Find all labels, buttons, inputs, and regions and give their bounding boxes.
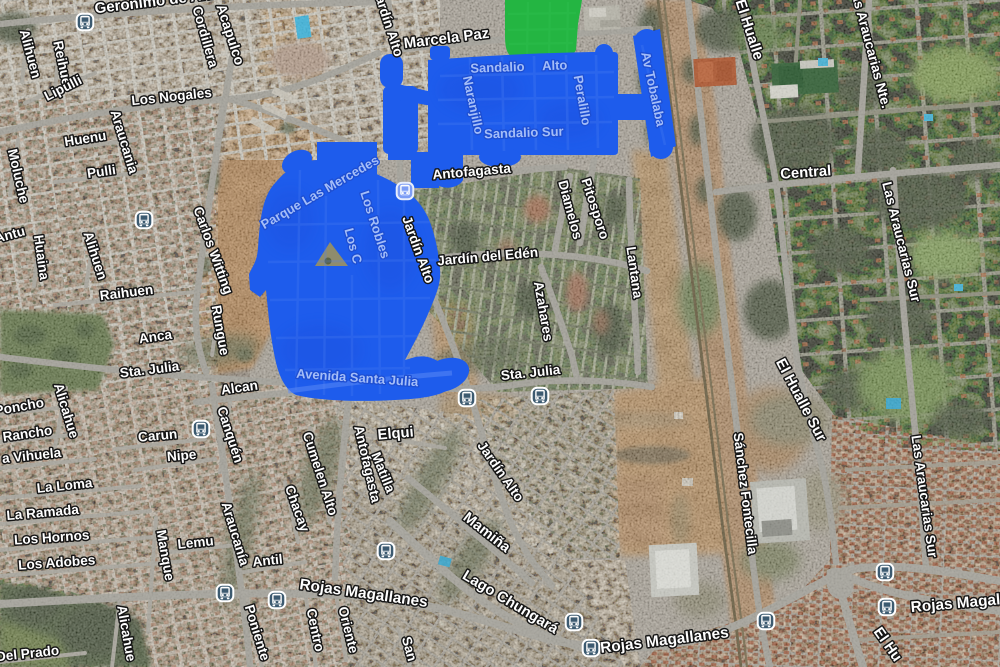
- svg-text:Sandalio Sur: Sandalio Sur: [484, 124, 564, 142]
- svg-text:Nipe: Nipe: [166, 447, 197, 465]
- svg-text:Antil: Antil: [252, 551, 284, 569]
- svg-text:Elqui: Elqui: [377, 424, 414, 443]
